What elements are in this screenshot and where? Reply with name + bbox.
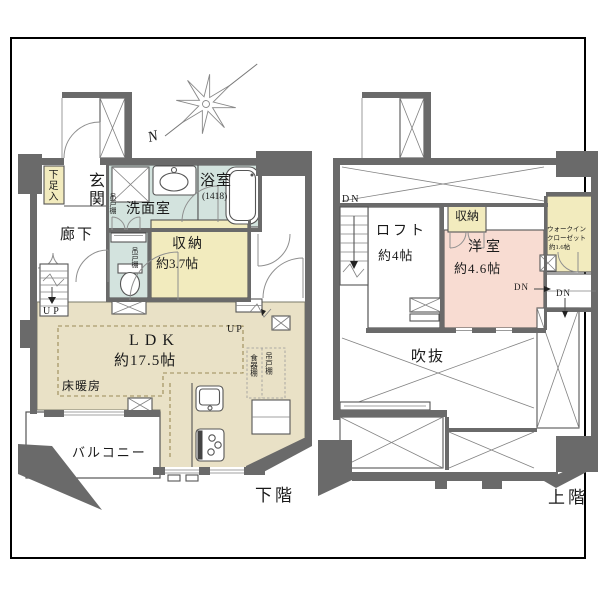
washing-machine-pan-icon xyxy=(112,167,149,202)
label-upper-storage: 収納 xyxy=(455,210,479,222)
washbasin-icon xyxy=(153,166,196,195)
compass-icon xyxy=(147,40,276,159)
label-wic-line2: クローゼット xyxy=(547,236,586,243)
label-shoe-cabinet: 下足入 xyxy=(46,169,56,202)
lower-floor-plan xyxy=(18,92,312,510)
label-lower-floor: 下階 xyxy=(255,487,295,504)
label-washroom: 洗面室 xyxy=(126,203,171,217)
label-storage-size: 約3.7帖 xyxy=(156,257,198,270)
floor-plan-image: 下足入 玄関 洗面室 吊戸棚 浴室 (1418) 廊下 吊戸棚 収納 約3.7帖… xyxy=(0,0,600,600)
label-balcony: バルコニー xyxy=(72,446,147,459)
label-dn-c: DN xyxy=(556,289,571,298)
label-loft-size: 約4帖 xyxy=(378,249,414,262)
label-up-a: UP xyxy=(43,307,62,317)
label-ldk-size: 約17.5帖 xyxy=(114,354,176,369)
label-hanging-cupboard-c: 吊戸棚 xyxy=(265,352,273,375)
label-void: 吹抜 xyxy=(411,350,445,365)
label-loft: ロフト xyxy=(376,225,427,239)
label-upper-floor: 上階 xyxy=(548,489,588,506)
floor-plan-canvas xyxy=(0,0,600,600)
label-corridor: 廊下 xyxy=(60,228,94,243)
label-bathroom: 浴室 xyxy=(200,174,232,189)
label-floor-heating: 床暖房 xyxy=(62,380,101,392)
label-wic-line1: ウォークイン xyxy=(547,227,586,234)
label-western-room-size: 約4.6帖 xyxy=(454,262,501,275)
label-dn-a: DN xyxy=(342,195,360,205)
label-hanging-cupboard-b: 吊戸棚 xyxy=(131,247,138,268)
label-wic-line3: 約1.6帖 xyxy=(549,245,570,252)
label-up-b: UP xyxy=(227,325,244,335)
label-hanging-cupboard-a: 吊戸棚 xyxy=(109,193,116,214)
label-storage: 収納 xyxy=(172,238,204,252)
label-dn-b: DN xyxy=(514,283,529,292)
label-western-room: 洋室 xyxy=(468,241,504,255)
label-dish-cabinet: 食器棚 xyxy=(250,354,258,377)
label-entrance: 玄関 xyxy=(86,172,102,208)
label-ldk: LDK xyxy=(129,333,180,349)
label-bathroom-size: (1418) xyxy=(202,193,227,203)
